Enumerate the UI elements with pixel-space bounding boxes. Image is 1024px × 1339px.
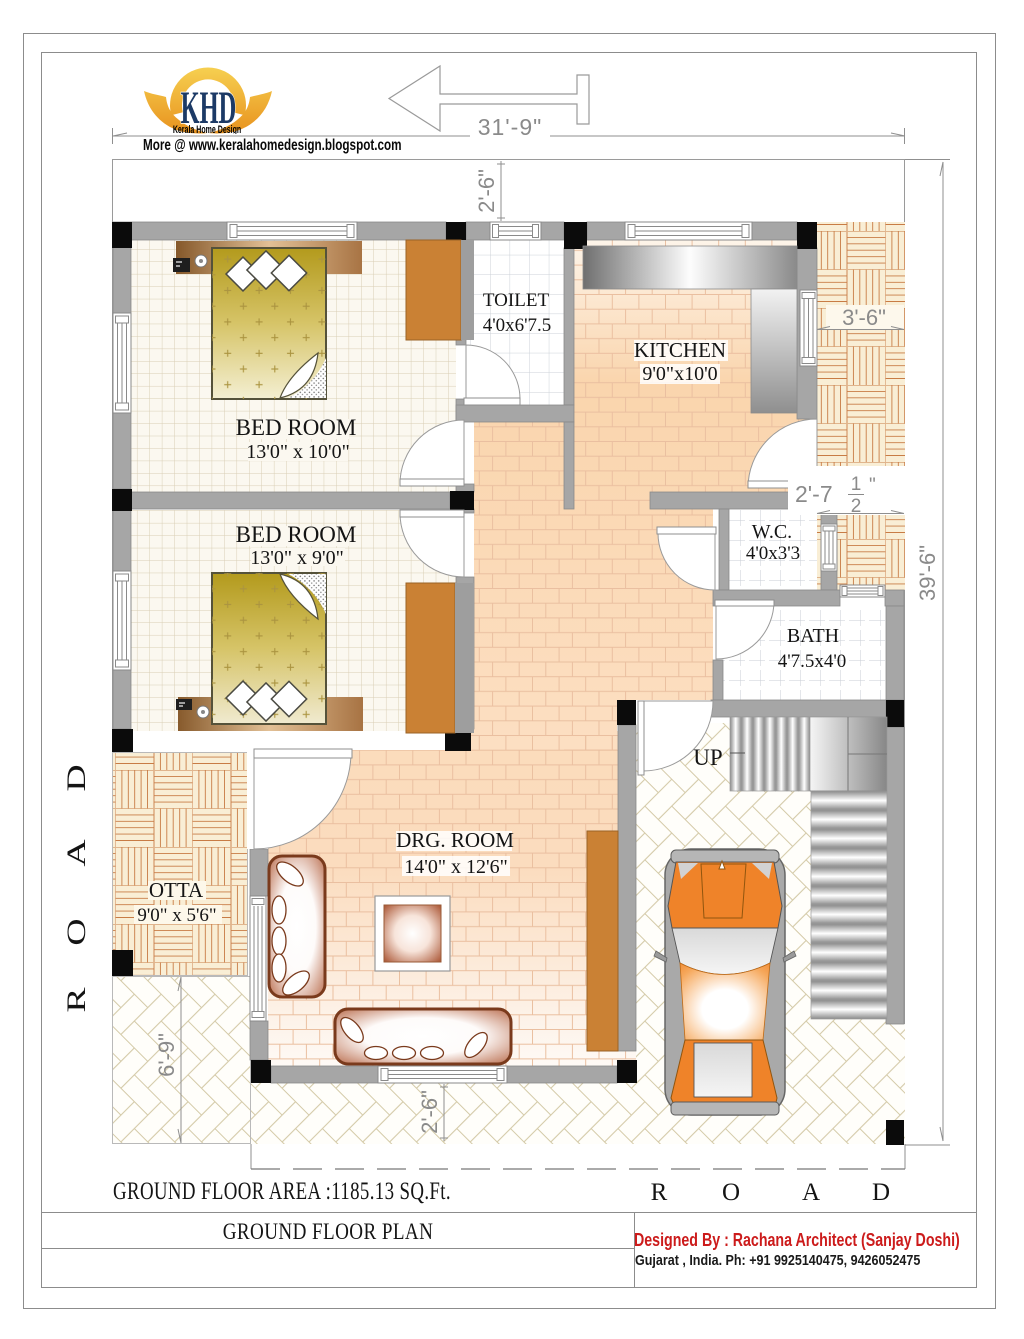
- svg-text:13'0" x 9'0": 13'0" x 9'0": [250, 547, 344, 569]
- svg-text:OTTA: OTTA: [149, 878, 204, 902]
- svg-text:6'-9": 6'-9": [154, 1033, 179, 1077]
- svg-text:4'7.5x4'0: 4'7.5x4'0: [778, 651, 847, 672]
- svg-text:Gujarat , India. Ph: +91 9925: Gujarat , India. Ph: +91 9925140475, 942…: [635, 1252, 921, 1268]
- svg-text:R: R: [63, 987, 92, 1013]
- svg-text:9'0"x10'0: 9'0"x10'0: [642, 363, 717, 385]
- svg-text:R: R: [651, 1179, 668, 1206]
- svg-text:GROUND FLOOR AREA :1185.13 S: GROUND FLOOR AREA :1185.13 SQ.Ft.: [113, 1176, 451, 1204]
- svg-text:D: D: [63, 764, 92, 791]
- svg-text:3'-6": 3'-6": [842, 305, 886, 330]
- svg-text:UP: UP: [693, 745, 722, 770]
- svg-text:2'-6": 2'-6": [474, 169, 499, 213]
- svg-text:39'-6": 39'-6": [915, 545, 940, 601]
- svg-text:Kerala Home Design: Kerala Home Design: [173, 123, 242, 135]
- svg-text:GROUND FLOOR PLAN: GROUND FLOOR PLAN: [223, 1218, 434, 1244]
- svg-text:Designed By : Rachana Architec: Designed By : Rachana Architect (Sanjay …: [634, 1230, 960, 1250]
- svg-text:KITCHEN: KITCHEN: [634, 338, 726, 362]
- svg-text:O: O: [722, 1179, 740, 1206]
- svg-text:2'-6": 2'-6": [417, 1090, 442, 1134]
- svg-text:13'0" x 10'0": 13'0" x 10'0": [246, 441, 350, 463]
- svg-text:31'-9": 31'-9": [478, 114, 543, 140]
- svg-text:More @ www.keralahomedesign.bl: More @ www.keralahomedesign.blogspot.com: [143, 137, 402, 154]
- svg-text:2'-7: 2'-7: [795, 481, 833, 507]
- svg-text:W.C.: W.C.: [752, 521, 792, 543]
- svg-text:14'0" x 12'6": 14'0" x 12'6": [404, 856, 508, 878]
- svg-text:": ": [869, 475, 876, 496]
- svg-text:4'0x3'3: 4'0x3'3: [746, 543, 800, 564]
- svg-text:4'0x6'7.5: 4'0x6'7.5: [483, 315, 552, 336]
- svg-text:D: D: [872, 1179, 890, 1206]
- svg-text:BED ROOM: BED ROOM: [236, 415, 357, 440]
- svg-text:A: A: [63, 839, 92, 867]
- svg-text:DRG. ROOM: DRG. ROOM: [396, 828, 514, 852]
- svg-text:TOILET: TOILET: [483, 290, 550, 311]
- svg-text:BATH: BATH: [787, 625, 839, 647]
- svg-text:O: O: [63, 918, 92, 945]
- svg-text:BED ROOM: BED ROOM: [236, 522, 357, 547]
- svg-text:A: A: [802, 1179, 820, 1206]
- svg-text:9'0" x 5'6": 9'0" x 5'6": [137, 905, 216, 926]
- svg-text:1: 1: [851, 474, 862, 495]
